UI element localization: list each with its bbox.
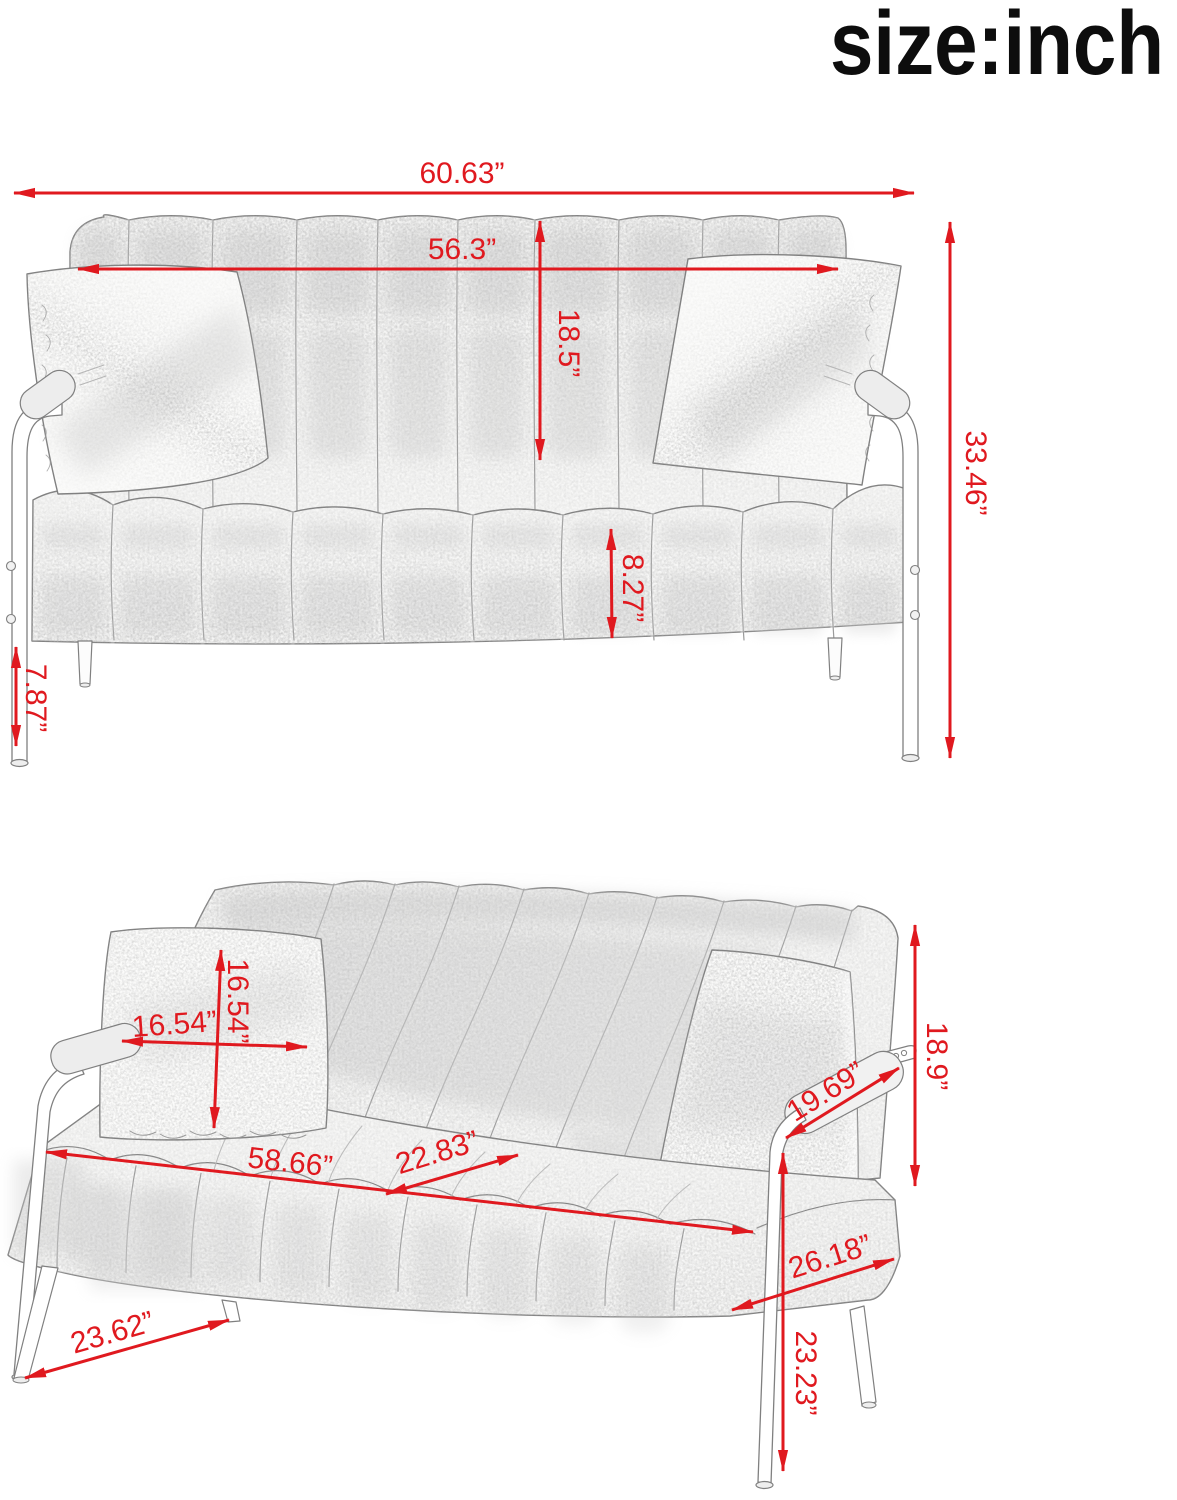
svg-text:60.63”: 60.63” (419, 157, 504, 190)
svg-text:7.87”: 7.87” (19, 664, 52, 732)
svg-text:56.3”: 56.3” (428, 233, 496, 266)
svg-text:16.54”: 16.54” (221, 958, 254, 1043)
svg-text:size:inch: size:inch (830, 0, 1164, 94)
svg-text:33.46”: 33.46” (959, 430, 992, 515)
svg-text:18.9”: 18.9” (920, 1022, 953, 1090)
svg-text:18.5”: 18.5” (552, 309, 585, 377)
svg-text:23.23”: 23.23” (789, 1330, 822, 1415)
svg-text:8.27”: 8.27” (616, 554, 649, 622)
svg-text:16.54”: 16.54” (131, 1005, 218, 1044)
